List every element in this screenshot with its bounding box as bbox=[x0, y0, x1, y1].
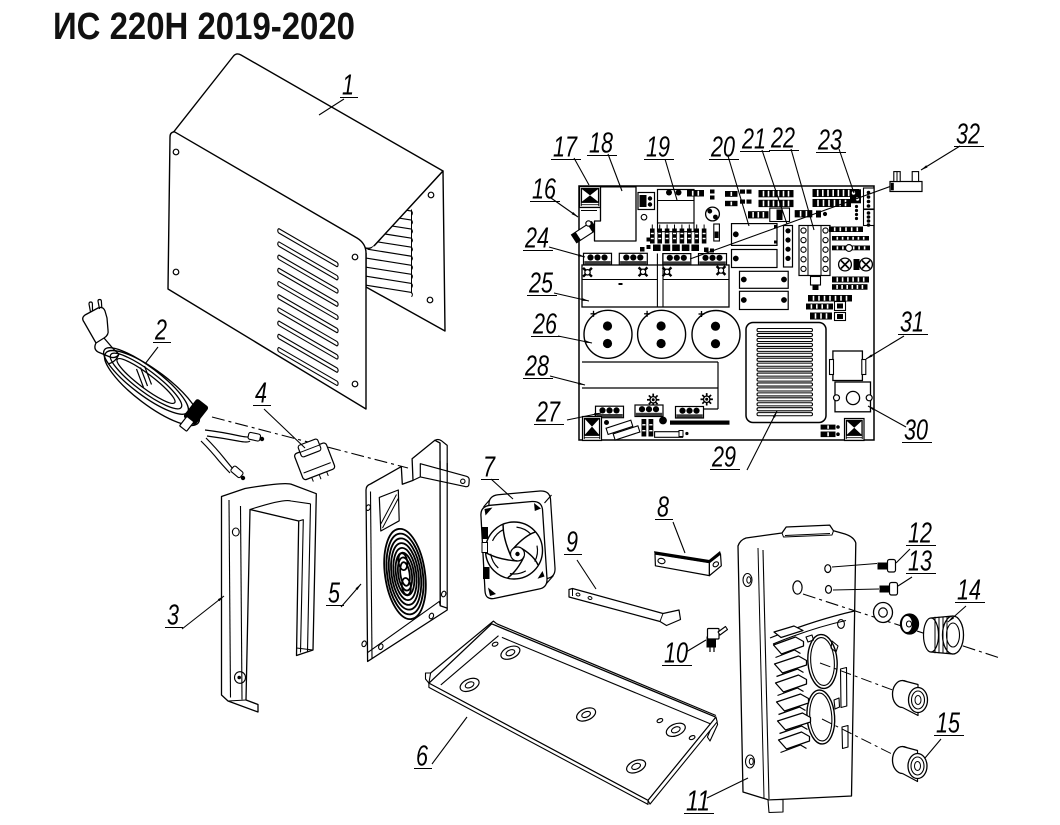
svg-text:14: 14 bbox=[957, 575, 981, 607]
svg-text:19: 19 bbox=[646, 132, 670, 164]
svg-text:10: 10 bbox=[664, 638, 688, 670]
svg-text:1: 1 bbox=[342, 70, 354, 102]
svg-text:25: 25 bbox=[528, 268, 553, 300]
svg-text:8: 8 bbox=[657, 492, 669, 524]
svg-text:24: 24 bbox=[524, 223, 549, 255]
svg-text:27: 27 bbox=[535, 397, 561, 429]
svg-text:20: 20 bbox=[710, 132, 735, 164]
svg-text:5: 5 bbox=[328, 578, 341, 610]
svg-text:9: 9 bbox=[566, 527, 578, 559]
svg-text:18: 18 bbox=[589, 128, 613, 160]
svg-text:15: 15 bbox=[936, 708, 961, 740]
svg-text:11: 11 bbox=[686, 786, 710, 818]
svg-text:6: 6 bbox=[416, 741, 429, 773]
svg-text:31: 31 bbox=[900, 307, 924, 339]
svg-text:7: 7 bbox=[483, 452, 496, 484]
svg-text:3: 3 bbox=[167, 600, 179, 632]
svg-text:4: 4 bbox=[255, 378, 267, 410]
svg-text:13: 13 bbox=[908, 546, 932, 578]
svg-text:2: 2 bbox=[154, 315, 167, 347]
svg-text:29: 29 bbox=[711, 442, 736, 474]
svg-text:26: 26 bbox=[532, 309, 557, 341]
svg-text:16: 16 bbox=[532, 174, 557, 206]
svg-text:30: 30 bbox=[904, 415, 928, 447]
svg-text:23: 23 bbox=[817, 125, 842, 157]
svg-text:ИС 220Н 2019-2020: ИС 220Н 2019-2020 bbox=[53, 6, 355, 48]
svg-text:28: 28 bbox=[524, 351, 549, 383]
